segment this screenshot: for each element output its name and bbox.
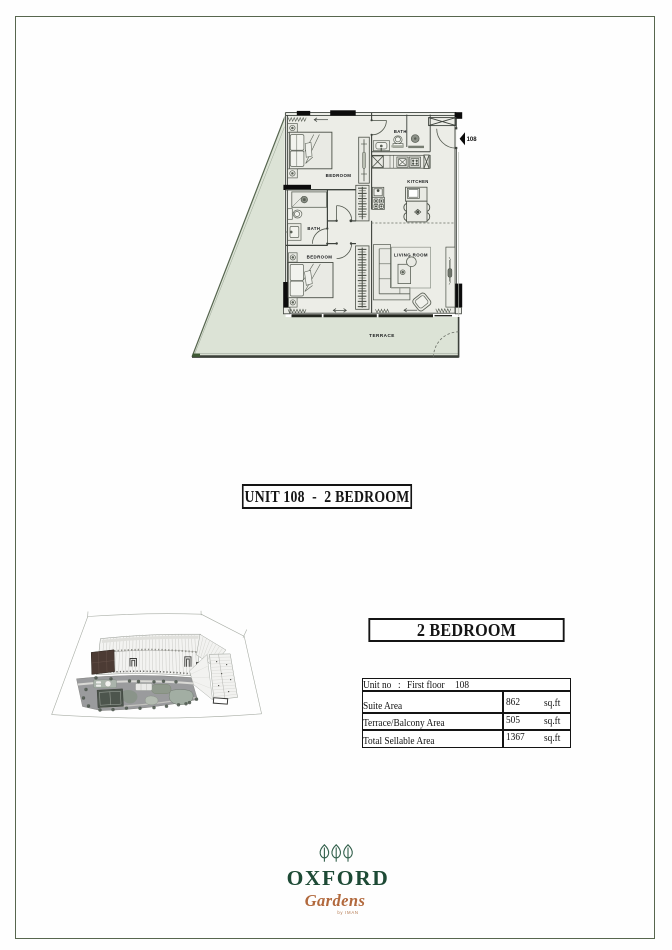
svg-text:BEDROOM: BEDROOM [326,173,352,178]
svg-text:KITCHEN: KITCHEN [407,179,428,184]
svg-text:108: 108 [467,137,478,143]
svg-text:BEDROOM: BEDROOM [307,254,333,259]
svg-text:BATH: BATH [394,129,407,134]
svg-text:TERRACE: TERRACE [369,333,395,338]
svg-text:BATH: BATH [307,226,320,231]
